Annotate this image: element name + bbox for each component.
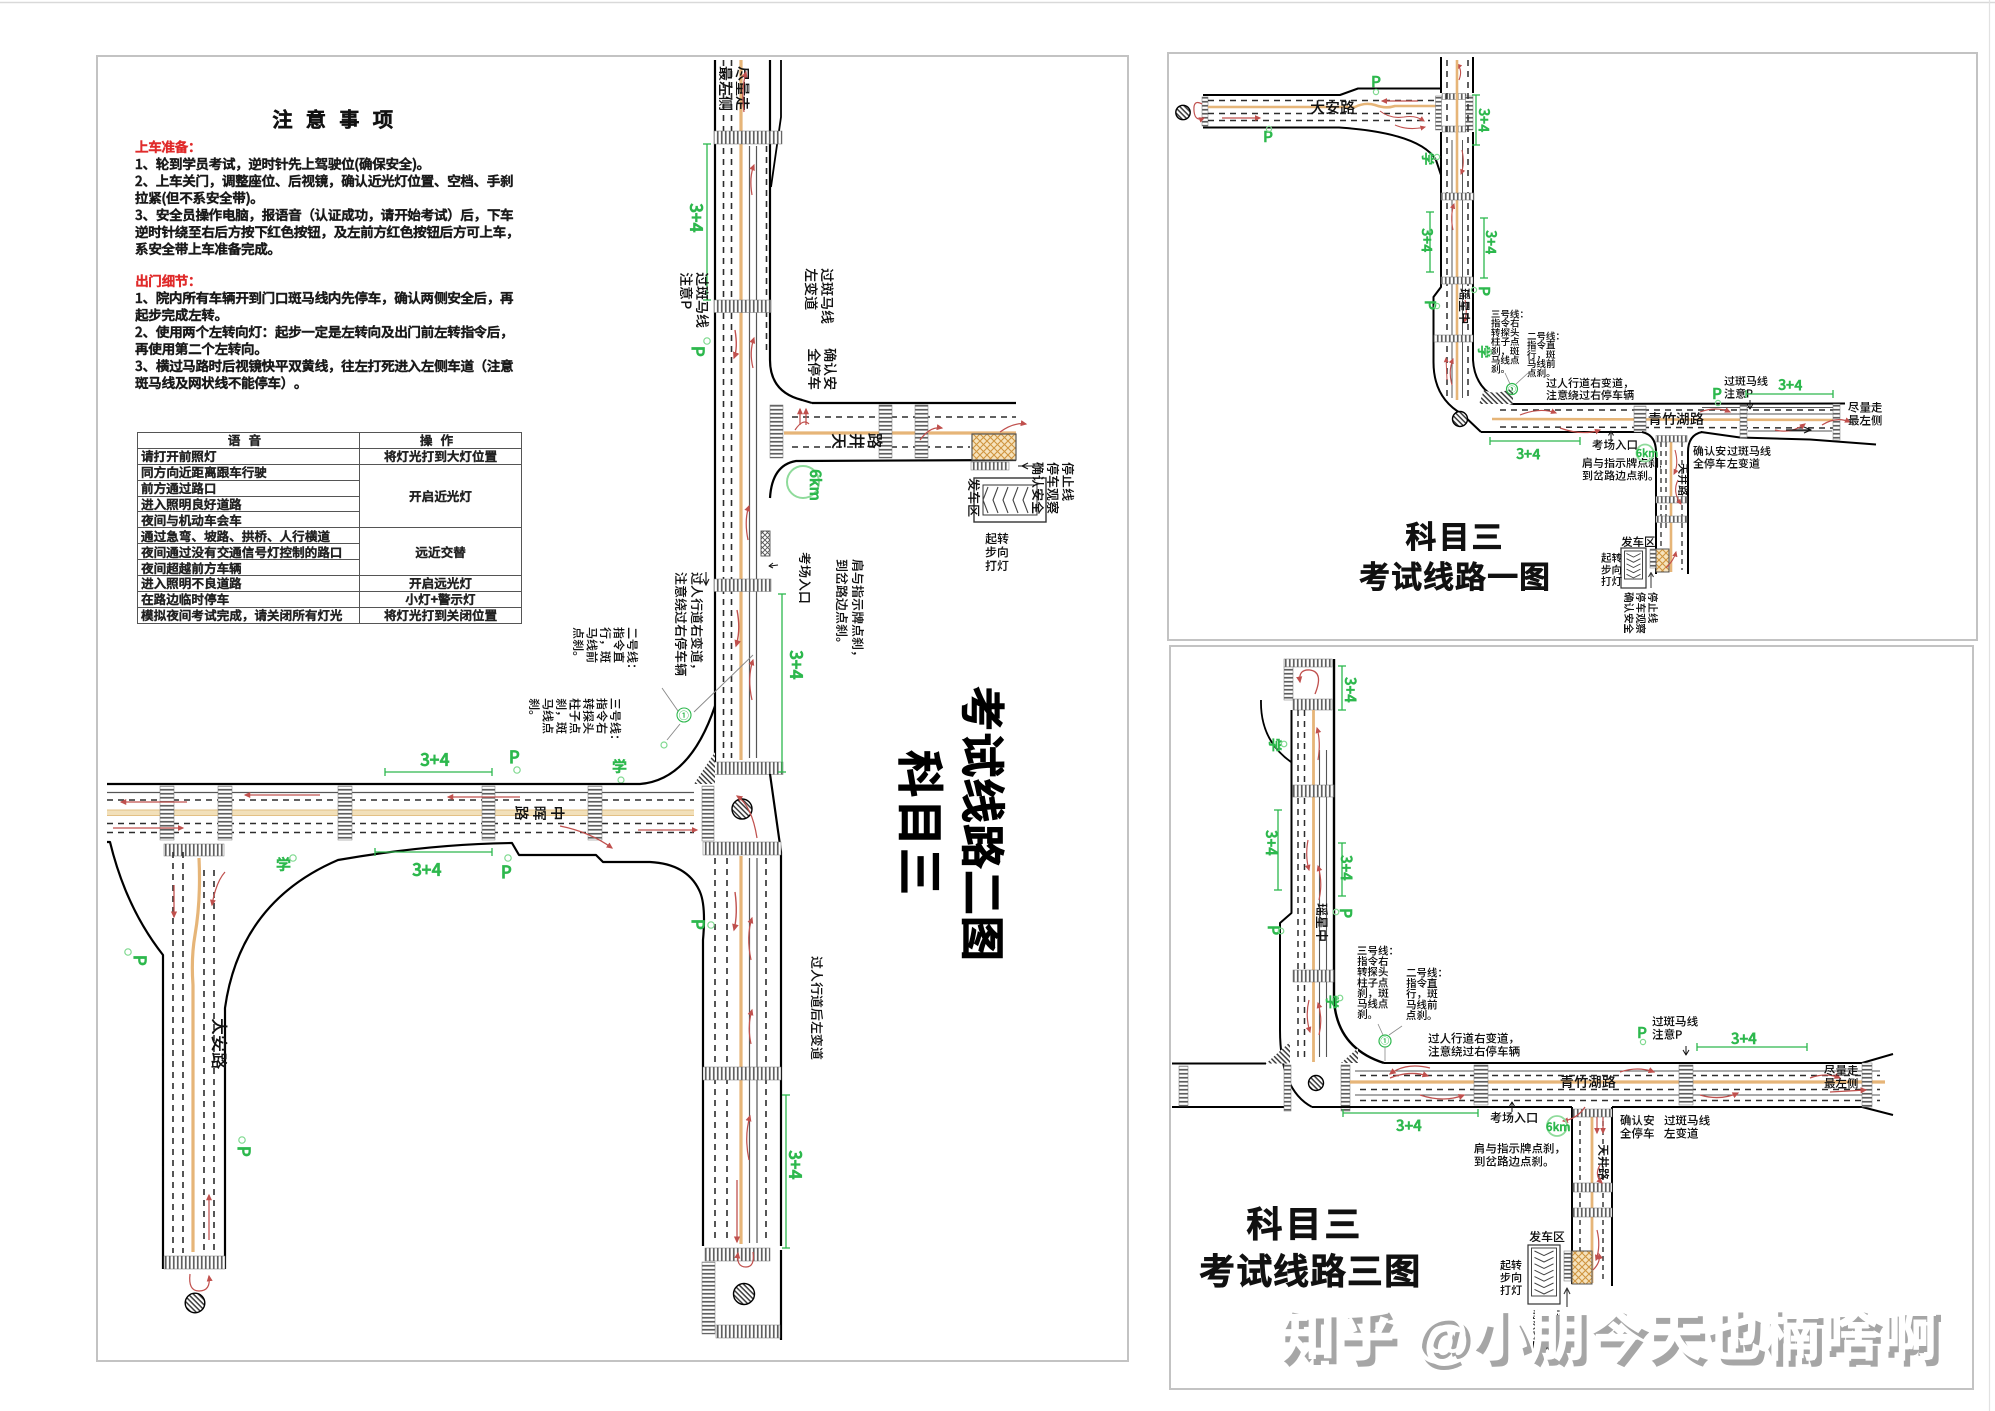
svg-text:确认安全停车: 确认安全停车 [1693,443,1726,472]
svg-text:3+4: 3+4 [411,856,442,881]
svg-text:过人行道右变道，注意绕过右停车辆: 过人行道右变道，注意绕过右停车辆 [1428,1031,1520,1060]
svg-text:P: P [1474,286,1495,296]
svg-text:确认安全停车: 确认安全停车 [1620,1113,1655,1142]
svg-text:3+4: 3+4 [1417,227,1437,253]
svg-text:确认安全停车: 确认安全停车 [804,348,840,390]
svg-text:6km: 6km [1546,1119,1570,1135]
svg-text:学: 学 [612,756,627,777]
svg-text:大安路: 大安路 [208,1018,233,1069]
svg-text:考场入口: 考场入口 [1490,1109,1538,1126]
svg-text:起转步向打灯: 起转步向打灯 [985,530,1009,574]
svg-text:3+4: 3+4 [1474,107,1494,133]
svg-text:尽量走最左侧: 尽量走最左侧 [1847,400,1883,429]
svg-text:3+4: 3+4 [784,1149,809,1180]
svg-text:发车区: 发车区 [1529,1228,1565,1245]
svg-text:科目三: 科目三 [1246,1196,1363,1248]
svg-text:过人行道后左变道: 过人行道后左变道 [808,956,827,1060]
svg-text:尽量走最左侧: 尽量走最左侧 [1823,1063,1859,1092]
svg-text:3+4: 3+4 [1731,1028,1758,1049]
svg-text:3+4: 3+4 [1777,375,1803,395]
svg-text:瑶星中: 瑶星中 [1456,288,1473,324]
svg-text:晖: 晖 [529,805,550,820]
svg-text:①: ① [1508,384,1516,395]
svg-text:3+4: 3+4 [1481,229,1501,255]
svg-text:3+4: 3+4 [1396,1115,1423,1136]
svg-text:P: P [687,346,712,358]
svg-text:过人行道右变道，注意绕过右停车辆: 过人行道右变道，注意绕过右停车辆 [672,572,707,676]
svg-text:路: 路 [511,805,532,820]
svg-text:学: 学 [1322,995,1342,1009]
svg-text:①: ① [679,707,689,722]
svg-text:肩与指示牌点刹，到岔路边点刹。: 肩与指示牌点刹，到岔路边点刹。 [1474,1141,1566,1170]
svg-text:3+4: 3+4 [1515,444,1541,464]
svg-text:大安路: 大安路 [1310,97,1355,118]
svg-text:过人行道右变道，注意绕过右停车辆: 过人行道右变道，注意绕过右停车辆 [1546,375,1634,403]
svg-text:3+4: 3+4 [1261,830,1282,857]
svg-text:6km: 6km [1636,446,1659,461]
svg-text:考试线路二图: 考试线路二图 [953,686,1018,962]
svg-text:路: 路 [864,433,888,449]
svg-text:P: P [129,955,154,967]
svg-text:3+4: 3+4 [1340,677,1361,704]
svg-text:发车区: 发车区 [965,478,984,517]
svg-text:考试线路三图: 考试线路三图 [1199,1243,1421,1295]
svg-text:P: P [501,858,513,883]
svg-text:青竹湖路: 青竹湖路 [1648,409,1704,429]
svg-text:3+4: 3+4 [1336,855,1357,882]
svg-text:P: P [233,1146,258,1158]
svg-text:科目三: 科目三 [1406,512,1505,557]
svg-text:3+4: 3+4 [419,746,450,771]
svg-text:学: 学 [276,854,291,875]
svg-text:P: P [509,743,521,768]
svg-text:3+4: 3+4 [685,202,710,233]
svg-text:6km: 6km [805,469,826,501]
svg-text:考试线路一图: 考试线路一图 [1358,552,1551,597]
svg-text:尽量走最左侧: 尽量走最左侧 [715,66,753,111]
svg-text:中: 中 [547,805,568,820]
svg-text:青竹湖路: 青竹湖路 [1560,1072,1616,1092]
svg-text:科目三: 科目三 [889,750,958,897]
svg-text:考场入口: 考场入口 [796,552,815,604]
svg-text:考场入口: 考场入口 [1592,437,1638,453]
svg-text:起转步向打灯: 起转步向打灯 [1601,551,1622,590]
svg-text:肩与指示牌点刹，到岔路边点刹。: 肩与指示牌点刹，到岔路边点刹。 [833,559,868,663]
svg-text:3+4: 3+4 [785,649,810,680]
svg-text:①: ① [1380,1034,1389,1047]
svg-text:瑶星中: 瑶星中 [1313,903,1332,942]
